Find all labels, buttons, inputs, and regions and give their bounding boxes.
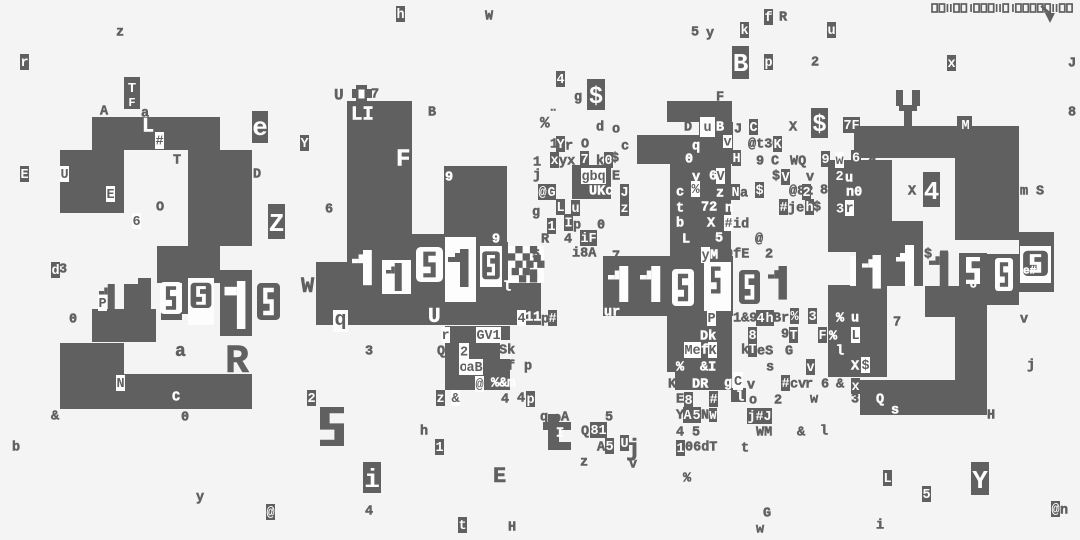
svg-text:l: l bbox=[736, 390, 744, 405]
svg-text:C: C bbox=[172, 390, 180, 405]
svg-text:9: 9 bbox=[821, 153, 829, 168]
svg-text:W: W bbox=[709, 409, 717, 423]
svg-text:K: K bbox=[668, 377, 677, 392]
svg-text:D: D bbox=[684, 120, 692, 135]
svg-text:0: 0 bbox=[69, 312, 77, 327]
svg-text:J: J bbox=[620, 186, 628, 201]
svg-text:#: # bbox=[709, 393, 717, 408]
svg-text:a: a bbox=[175, 342, 186, 362]
svg-text:T: T bbox=[789, 329, 797, 344]
svg-text:1: 1 bbox=[435, 441, 443, 456]
svg-text:H: H bbox=[508, 520, 516, 535]
svg-text:I: I bbox=[564, 217, 572, 232]
svg-text:4: 4 bbox=[564, 232, 572, 247]
svg-text:u: u bbox=[827, 24, 835, 39]
svg-text:V: V bbox=[716, 170, 725, 185]
svg-text:3: 3 bbox=[851, 392, 859, 407]
svg-text:i: i bbox=[580, 232, 588, 247]
svg-text:@: @ bbox=[475, 378, 483, 393]
svg-text:m: m bbox=[1020, 184, 1028, 199]
svg-text:h: h bbox=[805, 201, 813, 216]
svg-text:Y: Y bbox=[300, 137, 309, 152]
svg-text:$: $ bbox=[813, 200, 821, 215]
svg-text:R: R bbox=[225, 340, 249, 385]
svg-text:C: C bbox=[734, 375, 742, 390]
svg-text:p: p bbox=[764, 56, 772, 71]
svg-text:&: & bbox=[451, 392, 460, 407]
svg-text:h: h bbox=[396, 8, 404, 23]
svg-text:X: X bbox=[908, 184, 917, 199]
svg-text:y: y bbox=[701, 249, 709, 264]
svg-text:3: 3 bbox=[59, 262, 67, 277]
svg-text:r: r bbox=[20, 56, 28, 71]
svg-text:i: i bbox=[876, 518, 884, 533]
svg-text:4: 4 bbox=[676, 425, 684, 440]
svg-text:2: 2 bbox=[765, 247, 773, 262]
svg-text:M: M bbox=[710, 248, 718, 263]
svg-text:P: P bbox=[707, 312, 715, 327]
svg-text:E: E bbox=[612, 169, 620, 184]
svg-text:b: b bbox=[12, 440, 20, 455]
svg-text:4: 4 bbox=[365, 504, 373, 519]
svg-text:t: t bbox=[741, 441, 749, 456]
svg-text:9: 9 bbox=[445, 170, 453, 185]
svg-text:I: I bbox=[915, 242, 923, 257]
svg-text:@: @ bbox=[266, 506, 274, 521]
svg-text:r: r bbox=[441, 329, 449, 344]
svg-text:8: 8 bbox=[684, 394, 692, 409]
svg-text:q: q bbox=[334, 309, 346, 332]
svg-text:H: H bbox=[732, 152, 740, 167]
svg-text:z: z bbox=[620, 202, 628, 217]
svg-text:z: z bbox=[580, 455, 588, 470]
svg-text:N: N bbox=[116, 377, 124, 392]
svg-text:J: J bbox=[1068, 56, 1076, 71]
svg-text:s: s bbox=[891, 403, 899, 418]
svg-text:o: o bbox=[970, 280, 977, 292]
svg-text:5: 5 bbox=[692, 425, 700, 440]
svg-text:C: C bbox=[771, 154, 779, 169]
svg-text:&I: &I bbox=[700, 360, 716, 375]
svg-text:$: $ bbox=[812, 112, 826, 139]
svg-text:g: g bbox=[574, 90, 582, 105]
svg-text:$: $ bbox=[755, 184, 763, 199]
svg-text:cv: cv bbox=[790, 377, 806, 392]
svg-text:2: 2 bbox=[307, 392, 315, 407]
svg-text:3: 3 bbox=[836, 203, 844, 218]
svg-text:e#: e# bbox=[1023, 266, 1037, 278]
svg-text:U: U bbox=[334, 86, 344, 104]
svg-text:F: F bbox=[818, 329, 826, 344]
svg-text:E: E bbox=[106, 188, 114, 203]
svg-text:z: z bbox=[716, 186, 724, 201]
svg-text:w: w bbox=[756, 522, 765, 537]
svg-text:2: 2 bbox=[802, 186, 810, 201]
svg-text:q: q bbox=[540, 410, 548, 425]
svg-text:t: t bbox=[458, 519, 466, 534]
svg-text:p: p bbox=[573, 218, 581, 233]
svg-text:L: L bbox=[682, 232, 690, 247]
svg-text:r: r bbox=[805, 377, 813, 392]
svg-text:7: 7 bbox=[612, 249, 620, 264]
svg-text:g: g bbox=[581, 170, 589, 185]
svg-text:9: 9 bbox=[756, 154, 764, 169]
svg-text:L: L bbox=[851, 329, 859, 344]
svg-text:6: 6 bbox=[852, 152, 860, 167]
svg-text:1: 1 bbox=[676, 442, 684, 457]
svg-text:c: c bbox=[621, 139, 629, 154]
svg-text:r: r bbox=[565, 139, 573, 154]
svg-text:z: z bbox=[436, 392, 444, 407]
svg-text:W: W bbox=[485, 9, 494, 24]
svg-text:5: 5 bbox=[922, 488, 930, 503]
svg-text:L: L bbox=[556, 201, 564, 216]
svg-text:n: n bbox=[1060, 503, 1068, 518]
svg-text:J: J bbox=[734, 122, 742, 137]
svg-text:A: A bbox=[561, 410, 570, 425]
svg-text:v: v bbox=[747, 378, 755, 393]
svg-text:#: # bbox=[781, 377, 789, 392]
svg-text:#: # bbox=[155, 135, 163, 150]
svg-text:v: v bbox=[806, 361, 814, 376]
svg-text:6: 6 bbox=[821, 377, 829, 392]
svg-text:D: D bbox=[253, 167, 261, 182]
svg-text:F: F bbox=[128, 96, 135, 110]
svg-text:Y: Y bbox=[972, 466, 988, 496]
svg-text:R: R bbox=[779, 10, 788, 25]
svg-text:4: 4 bbox=[517, 391, 525, 406]
svg-text:X: X bbox=[707, 216, 716, 231]
svg-text:$: $ bbox=[772, 169, 780, 184]
svg-text:h: h bbox=[420, 424, 428, 439]
svg-text:G: G bbox=[763, 506, 771, 521]
svg-text:4: 4 bbox=[756, 312, 764, 327]
svg-text:3: 3 bbox=[808, 310, 816, 325]
svg-text:J: J bbox=[763, 410, 771, 425]
svg-text:#: # bbox=[755, 410, 763, 425]
svg-text:4: 4 bbox=[556, 73, 564, 88]
svg-text:g: g bbox=[532, 205, 540, 220]
svg-text:d: d bbox=[596, 120, 604, 135]
svg-text:&: & bbox=[836, 377, 845, 392]
svg-text:k: k bbox=[740, 24, 748, 39]
svg-text:Z: Z bbox=[269, 209, 285, 239]
svg-text:#: # bbox=[724, 217, 732, 232]
svg-text:F: F bbox=[396, 147, 410, 174]
svg-text:p: p bbox=[526, 393, 534, 408]
svg-text:o: o bbox=[749, 393, 757, 408]
svg-text:%: % bbox=[676, 360, 685, 375]
svg-text:A: A bbox=[683, 409, 692, 424]
svg-text:%: % bbox=[691, 183, 700, 198]
svg-text:n: n bbox=[725, 201, 733, 216]
svg-text:v: v bbox=[1020, 312, 1028, 327]
svg-text:Q: Q bbox=[876, 392, 884, 407]
svg-text:UKc: UKc bbox=[589, 184, 613, 199]
svg-text:y: y bbox=[196, 490, 204, 505]
svg-text:&: & bbox=[51, 409, 60, 424]
svg-text:j: j bbox=[533, 168, 541, 183]
svg-text:8: 8 bbox=[1068, 105, 1076, 120]
svg-text:w: w bbox=[835, 154, 844, 169]
svg-text:3: 3 bbox=[365, 344, 373, 359]
svg-text:u: u bbox=[845, 171, 853, 186]
svg-text:z: z bbox=[116, 25, 124, 40]
svg-text:$: $ bbox=[924, 247, 932, 262]
svg-text:q: q bbox=[692, 139, 700, 154]
svg-text:X: X bbox=[789, 120, 798, 135]
svg-text:6: 6 bbox=[132, 215, 140, 230]
svg-text:o: o bbox=[612, 122, 620, 137]
svg-text:eS: eS bbox=[757, 344, 773, 359]
svg-text:F: F bbox=[851, 119, 859, 134]
svg-text:l: l bbox=[836, 344, 844, 359]
svg-text:T: T bbox=[748, 343, 756, 358]
svg-text:N: N bbox=[701, 408, 709, 423]
svg-text:M: M bbox=[961, 119, 969, 134]
svg-text:9fE: 9fE bbox=[725, 247, 749, 262]
svg-text:I: I bbox=[556, 426, 564, 441]
svg-text:v: v bbox=[629, 457, 637, 472]
svg-text:T: T bbox=[173, 153, 181, 168]
svg-text:i: i bbox=[364, 465, 380, 495]
svg-text:Q: Q bbox=[581, 424, 589, 439]
svg-text:8: 8 bbox=[820, 183, 828, 198]
svg-text:1&9: 1&9 bbox=[733, 311, 757, 326]
svg-text:n0: n0 bbox=[846, 185, 862, 200]
svg-text:e: e bbox=[252, 113, 268, 143]
svg-text:v: v bbox=[723, 136, 731, 151]
svg-text:5: 5 bbox=[715, 231, 723, 246]
svg-text:1: 1 bbox=[492, 329, 500, 344]
svg-text:j: j bbox=[1027, 358, 1035, 373]
svg-text:O: O bbox=[581, 137, 589, 152]
svg-text:5: 5 bbox=[691, 25, 699, 40]
svg-text:l: l bbox=[503, 280, 511, 295]
svg-text:06dT: 06dT bbox=[685, 440, 717, 455]
svg-text:#: # bbox=[548, 312, 556, 327]
svg-text:6: 6 bbox=[325, 202, 333, 217]
svg-text:$: $ bbox=[611, 151, 619, 166]
svg-text:@: @ bbox=[755, 232, 763, 247]
svg-text:B: B bbox=[428, 105, 436, 120]
svg-text:Br: Br bbox=[773, 311, 789, 326]
svg-text:7: 7 bbox=[893, 315, 901, 330]
svg-text:E: E bbox=[20, 168, 28, 183]
svg-text:1: 1 bbox=[598, 424, 606, 439]
svg-text:%: % bbox=[836, 311, 845, 326]
svg-text:E: E bbox=[676, 392, 684, 407]
svg-text:72: 72 bbox=[701, 200, 717, 215]
svg-text:1: 1 bbox=[547, 220, 555, 235]
svg-text:¨: ¨ bbox=[549, 108, 557, 124]
svg-text:7: 7 bbox=[843, 119, 851, 134]
svg-text:5: 5 bbox=[532, 248, 540, 263]
svg-text:7: 7 bbox=[580, 153, 588, 168]
svg-text:L: L bbox=[142, 115, 154, 138]
svg-text:f: f bbox=[764, 11, 772, 26]
svg-text:k: k bbox=[596, 154, 604, 169]
svg-text:0: 0 bbox=[597, 218, 605, 233]
svg-text:S: S bbox=[1036, 184, 1044, 199]
svg-text:U: U bbox=[428, 306, 441, 329]
svg-text:5: 5 bbox=[692, 409, 700, 424]
svg-text:$: $ bbox=[861, 359, 869, 374]
svg-text:o: o bbox=[553, 411, 561, 426]
svg-text:B: B bbox=[474, 361, 482, 376]
svg-text:K: K bbox=[773, 138, 782, 153]
svg-text:a: a bbox=[466, 361, 474, 376]
svg-text:O: O bbox=[156, 200, 164, 215]
svg-text:l: l bbox=[820, 424, 828, 439]
svg-text:8: 8 bbox=[590, 424, 598, 439]
svg-text:WQ: WQ bbox=[790, 154, 806, 169]
svg-text:Sk: Sk bbox=[499, 343, 515, 358]
svg-text:@: @ bbox=[1051, 503, 1059, 518]
svg-text:B: B bbox=[716, 120, 724, 135]
svg-text:4: 4 bbox=[501, 392, 509, 407]
svg-text:ur: ur bbox=[604, 305, 620, 320]
svg-text:yx: yx bbox=[559, 154, 575, 169]
svg-text:y: y bbox=[706, 26, 714, 41]
svg-text:U: U bbox=[60, 168, 68, 183]
svg-text:9: 9 bbox=[781, 327, 789, 342]
svg-text:q: q bbox=[868, 155, 876, 170]
svg-text:#: # bbox=[779, 201, 787, 216]
svg-text:B: B bbox=[733, 49, 749, 79]
svg-text:L: L bbox=[883, 472, 891, 487]
svg-text:%&m: %&m bbox=[491, 376, 515, 391]
svg-text:b: b bbox=[676, 216, 684, 231]
svg-text:e: e bbox=[692, 344, 700, 359]
svg-text:DR: DR bbox=[692, 377, 709, 392]
svg-text:%: % bbox=[790, 310, 799, 325]
svg-text:j: j bbox=[747, 410, 755, 425]
svg-text:g: g bbox=[724, 376, 732, 391]
svg-text:f: f bbox=[507, 359, 515, 374]
svg-text:T: T bbox=[128, 81, 136, 97]
svg-text:q: q bbox=[597, 170, 605, 185]
svg-text:F: F bbox=[588, 232, 596, 247]
svg-text:%: % bbox=[683, 471, 692, 486]
svg-text:X: X bbox=[851, 359, 860, 374]
svg-text:LI: LI bbox=[351, 104, 374, 126]
svg-text:p: p bbox=[524, 359, 532, 374]
svg-text:2: 2 bbox=[774, 393, 782, 408]
svg-text:a: a bbox=[740, 186, 748, 201]
svg-text:11: 11 bbox=[525, 310, 541, 325]
svg-text:i8A: i8A bbox=[572, 246, 597, 261]
svg-text:b: b bbox=[589, 170, 597, 185]
svg-text:Q: Q bbox=[437, 344, 445, 359]
svg-text:&: & bbox=[797, 425, 806, 440]
svg-text:id: id bbox=[733, 217, 749, 232]
svg-text:C: C bbox=[749, 121, 757, 136]
svg-text:9: 9 bbox=[492, 232, 500, 247]
svg-text:W: W bbox=[301, 274, 315, 299]
svg-text:$: $ bbox=[589, 84, 603, 111]
svg-text:P: P bbox=[98, 297, 106, 312]
svg-text:w: w bbox=[810, 392, 819, 407]
svg-text:G: G bbox=[476, 329, 484, 344]
svg-text:E: E bbox=[493, 464, 506, 489]
svg-text:A: A bbox=[100, 104, 109, 119]
svg-text:u: u bbox=[851, 311, 859, 326]
svg-text:4: 4 bbox=[924, 177, 940, 207]
svg-text:r: r bbox=[845, 202, 853, 217]
svg-text:@: @ bbox=[538, 186, 546, 201]
svg-text:2: 2 bbox=[460, 345, 468, 360]
svg-text:2: 2 bbox=[835, 170, 843, 185]
svg-text:u: u bbox=[703, 121, 711, 136]
svg-text:F: F bbox=[716, 90, 724, 105]
svg-text:t: t bbox=[676, 201, 684, 216]
svg-text:s: s bbox=[766, 360, 774, 375]
svg-text:c: c bbox=[676, 185, 684, 200]
svg-text:WM: WM bbox=[756, 425, 772, 440]
svg-text:0: 0 bbox=[685, 152, 693, 167]
svg-text:2: 2 bbox=[811, 55, 819, 70]
svg-text:K: K bbox=[708, 344, 717, 359]
svg-text:x: x bbox=[550, 154, 558, 169]
svg-text:%: % bbox=[829, 329, 838, 344]
svg-text:G: G bbox=[547, 186, 555, 201]
svg-text:7: 7 bbox=[371, 87, 379, 102]
svg-text:x: x bbox=[947, 57, 955, 72]
svg-text:H: H bbox=[987, 408, 995, 423]
svg-text:5: 5 bbox=[605, 440, 613, 455]
svg-text:0: 0 bbox=[181, 410, 189, 425]
svg-text:v: v bbox=[806, 170, 814, 185]
svg-text:M: M bbox=[684, 344, 692, 359]
svg-text:N: N bbox=[731, 186, 739, 201]
svg-text:G: G bbox=[785, 344, 793, 359]
